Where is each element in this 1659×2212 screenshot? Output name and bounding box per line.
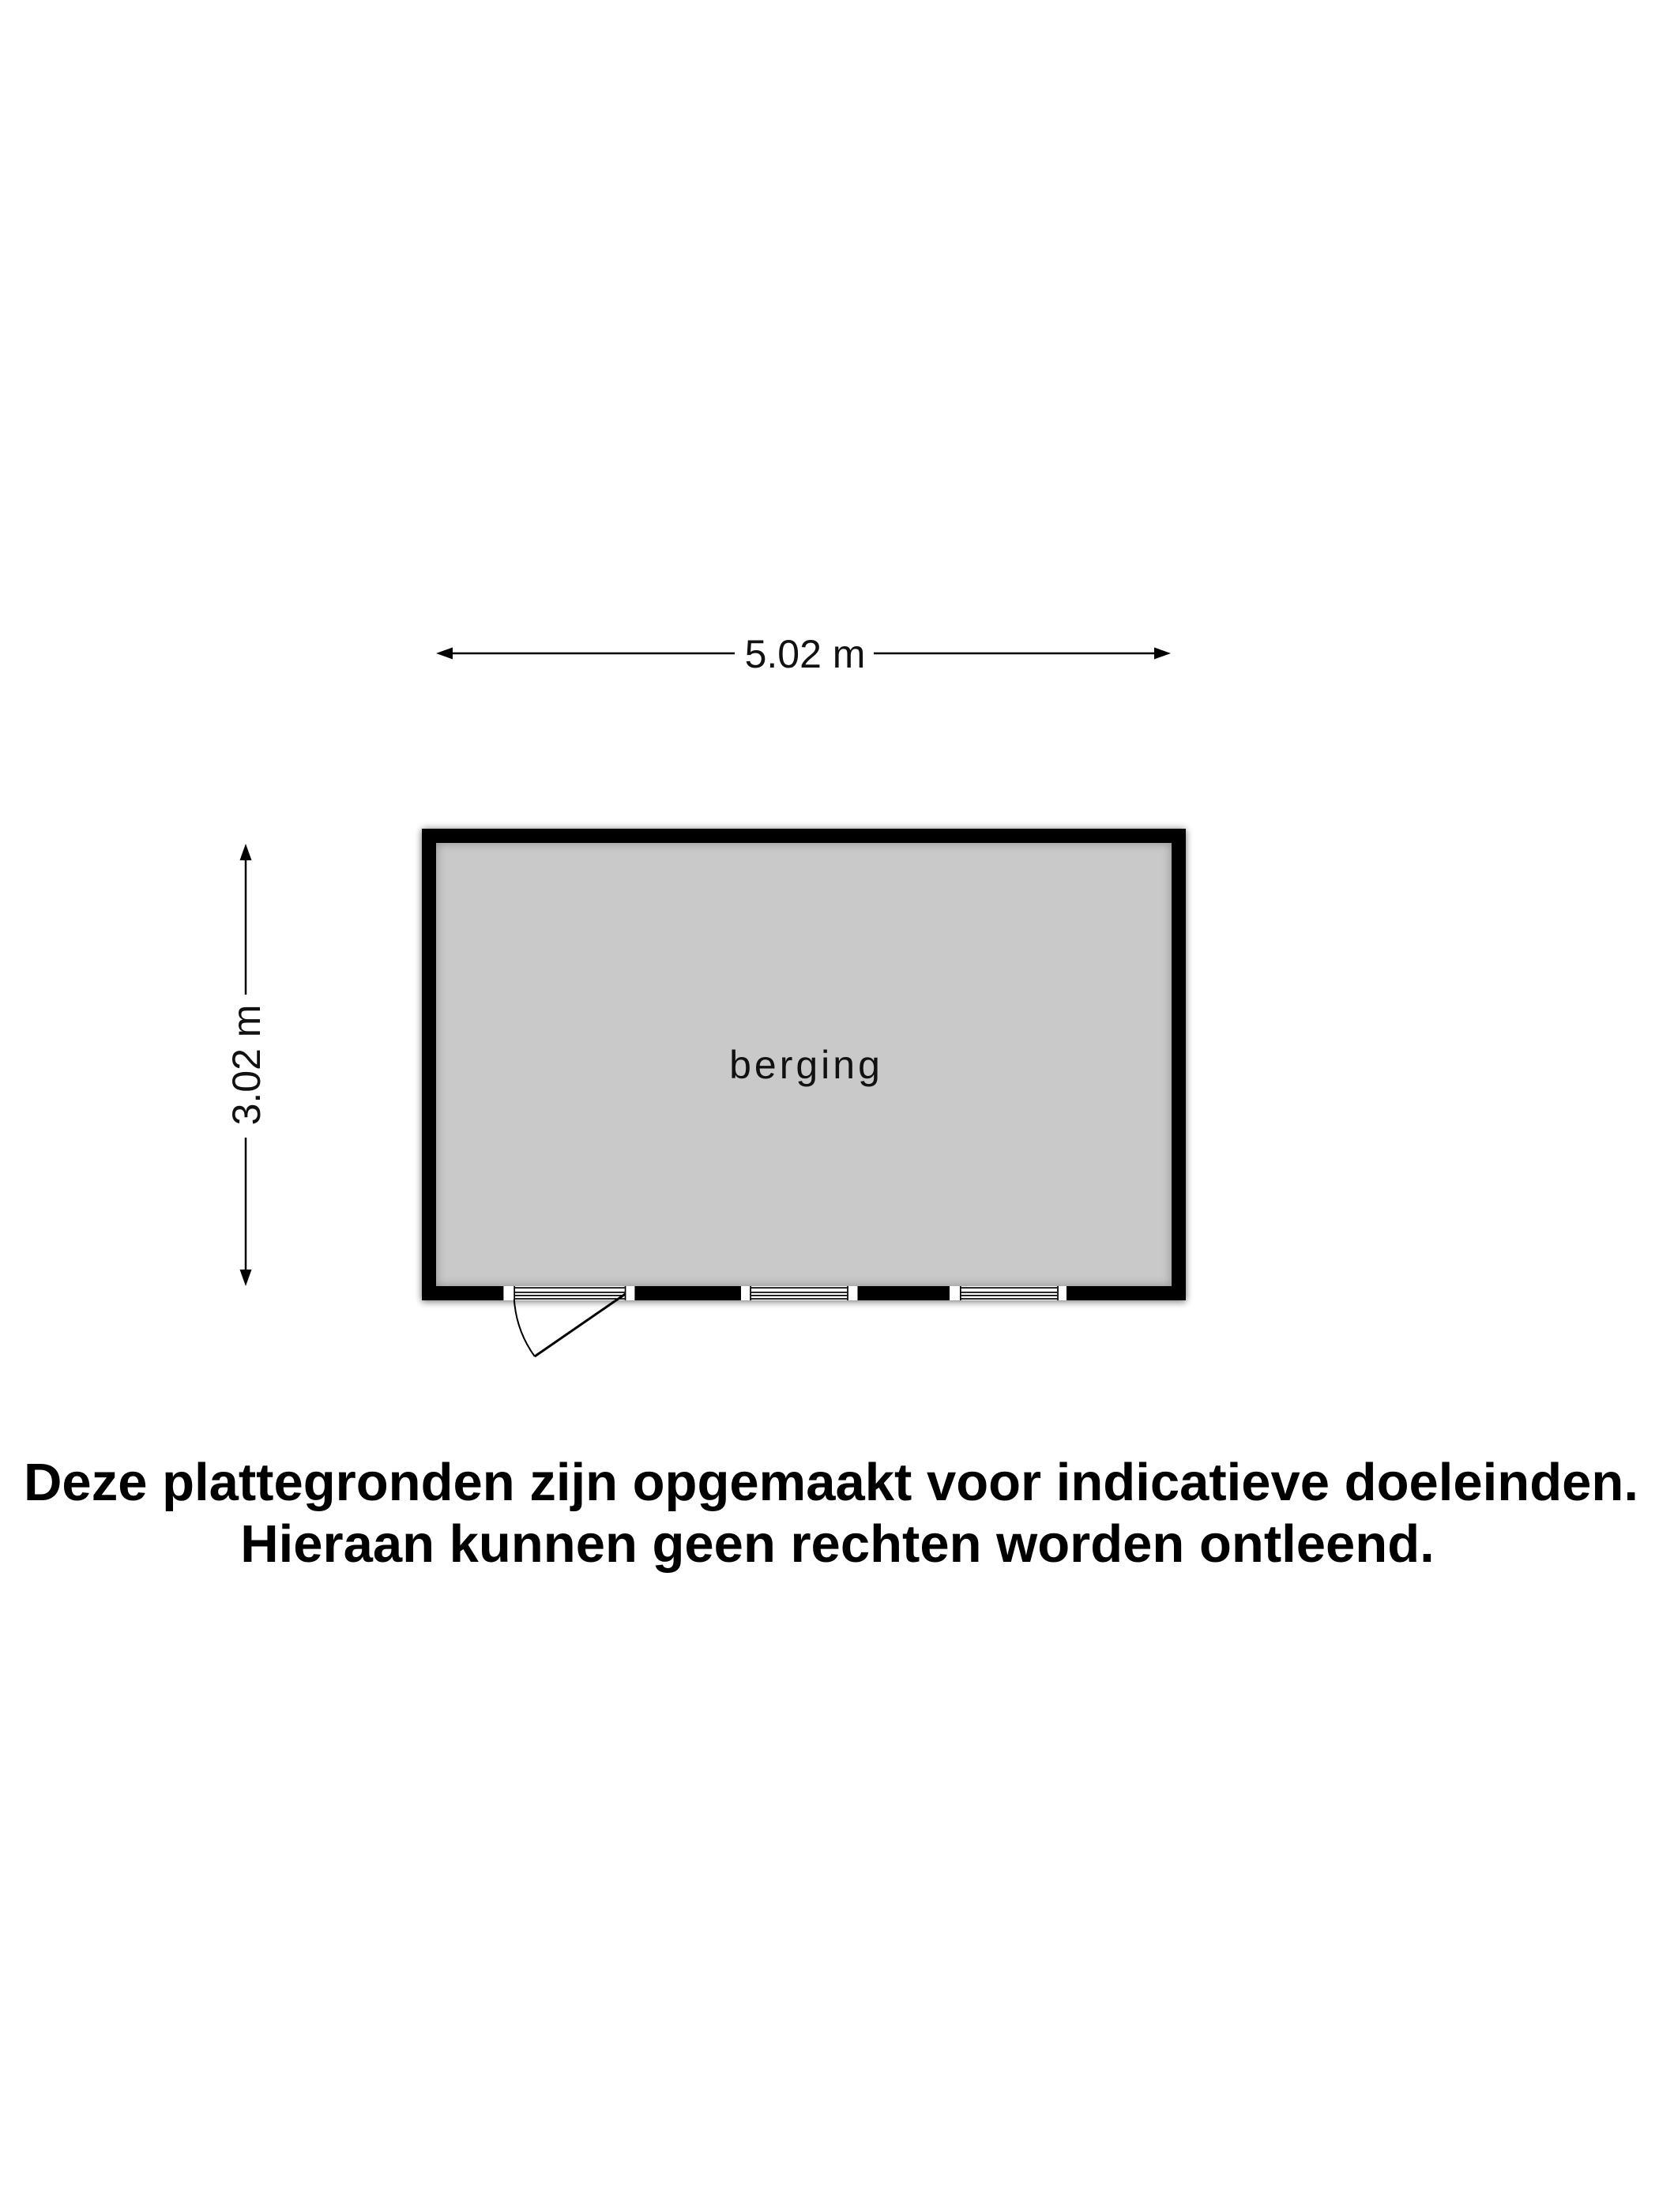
svg-text:5.02 m: 5.02 m: [745, 632, 866, 676]
svg-text:3.02 m: 3.02 m: [224, 1005, 269, 1126]
